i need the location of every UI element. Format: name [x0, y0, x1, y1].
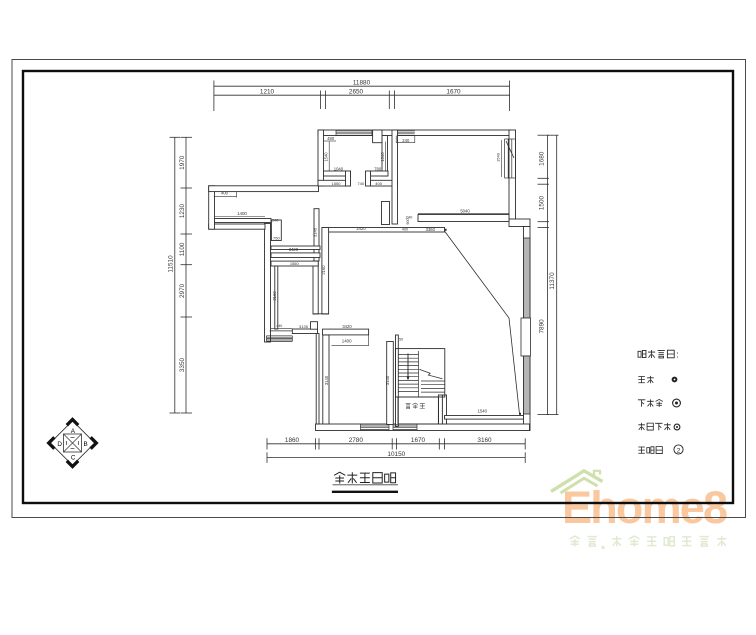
svg-text:1100: 1100 [179, 242, 186, 256]
svg-text:2: 2 [677, 447, 681, 454]
svg-text:1560: 1560 [290, 261, 300, 266]
svg-text:1230: 1230 [179, 203, 186, 218]
svg-text:1550: 1550 [332, 181, 342, 186]
svg-text:B: B [83, 441, 87, 448]
svg-text:3145: 3145 [312, 227, 317, 237]
svg-text:3420: 3420 [289, 247, 299, 252]
svg-text:1210: 1210 [260, 88, 275, 95]
svg-text:2160: 2160 [321, 265, 326, 275]
svg-text:440: 440 [276, 324, 282, 328]
svg-text:1540: 1540 [380, 152, 385, 162]
svg-text:D: D [57, 441, 62, 448]
svg-text:1040: 1040 [334, 166, 344, 171]
svg-text:3135: 3135 [299, 324, 309, 329]
svg-text:2780: 2780 [349, 437, 364, 444]
svg-text:50: 50 [399, 338, 403, 342]
svg-text::: : [676, 350, 679, 360]
svg-text:1680: 1680 [539, 151, 546, 166]
svg-text:3420: 3420 [342, 324, 352, 329]
svg-text:780: 780 [374, 166, 382, 171]
svg-text:1540: 1540 [496, 152, 501, 162]
svg-text:1670: 1670 [411, 437, 426, 444]
svg-text:1860: 1860 [285, 437, 300, 444]
svg-text:750: 750 [273, 236, 280, 241]
svg-text:7890: 7890 [539, 319, 546, 334]
svg-text:480: 480 [327, 136, 335, 141]
svg-text:3140: 3140 [385, 375, 390, 385]
svg-text:400: 400 [221, 191, 229, 196]
svg-text:11370: 11370 [549, 272, 556, 290]
svg-text:1400: 1400 [237, 211, 247, 216]
svg-text:2160: 2160 [272, 291, 277, 301]
svg-text:400: 400 [375, 181, 382, 186]
svg-text:3160: 3160 [477, 437, 492, 444]
svg-text:2650: 2650 [349, 88, 364, 95]
svg-text:2970: 2970 [179, 283, 186, 298]
svg-text:740: 740 [358, 181, 365, 186]
svg-text:11510: 11510 [168, 255, 175, 273]
svg-text:2420: 2420 [356, 226, 366, 231]
svg-text:1500: 1500 [539, 195, 546, 210]
svg-text:1400: 1400 [342, 339, 352, 344]
svg-text:3140: 3140 [324, 375, 329, 385]
svg-text:3360: 3360 [426, 227, 436, 232]
svg-text:5040: 5040 [460, 209, 470, 214]
svg-text:1540: 1540 [478, 409, 488, 414]
svg-text:1670: 1670 [446, 88, 461, 95]
svg-text:Ehome8: Ehome8 [562, 482, 727, 533]
svg-text:3350: 3350 [179, 357, 186, 372]
svg-text:400: 400 [402, 228, 408, 232]
svg-text:900: 900 [406, 218, 410, 224]
svg-text:240: 240 [272, 218, 278, 222]
svg-text:C: C [71, 455, 76, 462]
svg-text:10150: 10150 [387, 451, 405, 458]
svg-text:1970: 1970 [179, 155, 186, 170]
svg-text:240: 240 [402, 138, 410, 143]
svg-text:11880: 11880 [353, 80, 371, 87]
svg-text:1540: 1540 [323, 152, 328, 162]
